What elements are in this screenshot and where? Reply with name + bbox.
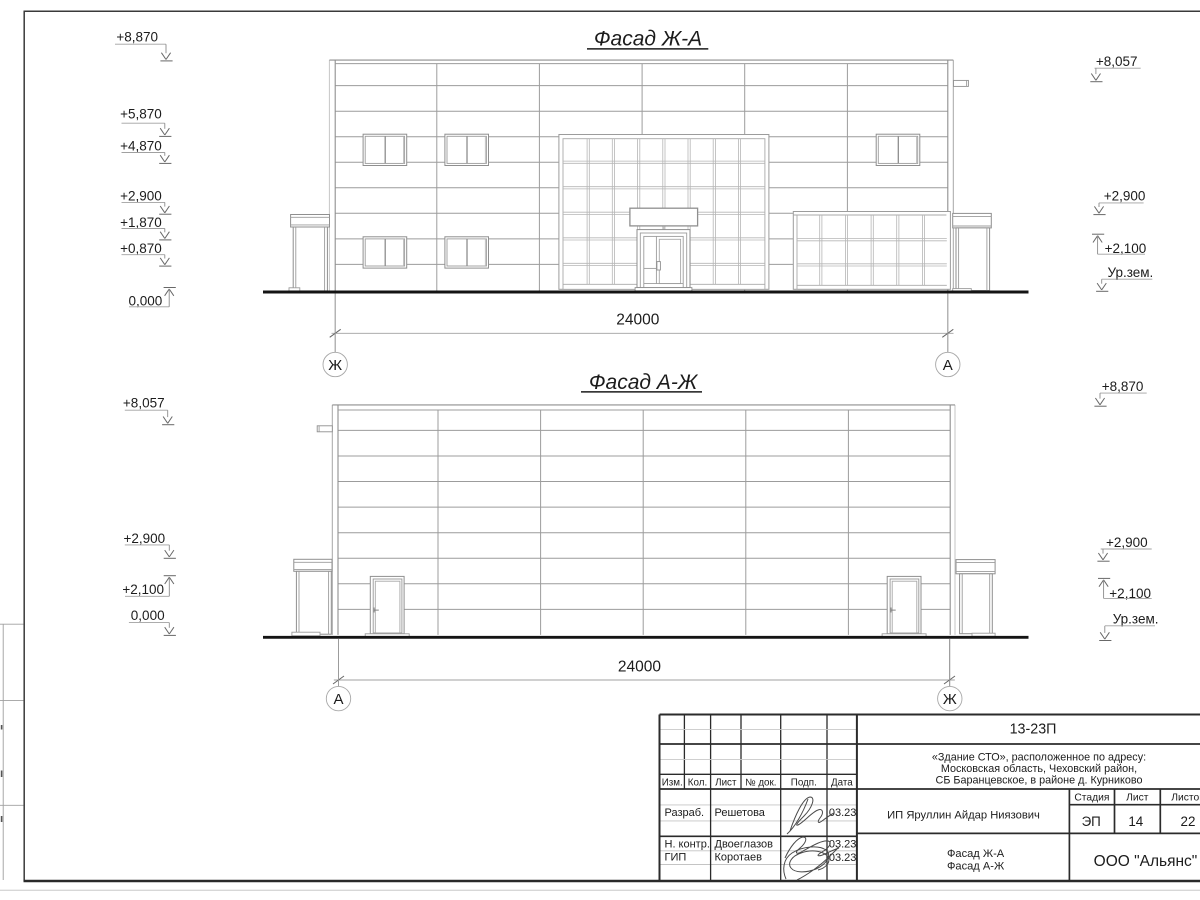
svg-text:Подп.: Подп. xyxy=(791,777,817,788)
svg-text:А: А xyxy=(943,357,953,374)
svg-text:03.23: 03.23 xyxy=(829,852,857,864)
svg-text:«Здание СТО», расположенное по: «Здание СТО», расположенное по адресу: xyxy=(932,752,1146,764)
svg-text:№ док.: № док. xyxy=(745,777,776,788)
svg-text:Коротаев: Коротаев xyxy=(715,852,763,864)
svg-text:+2,100: +2,100 xyxy=(1105,241,1147,256)
svg-text:+8,870: +8,870 xyxy=(116,30,158,45)
svg-text:Кол.: Кол. xyxy=(688,777,707,788)
svg-text:ООО "Альянс": ООО "Альянс" xyxy=(1094,853,1198,870)
svg-text:Стадия: Стадия xyxy=(1074,792,1109,803)
svg-text:+2,100: +2,100 xyxy=(122,582,164,597)
svg-text:+8,057: +8,057 xyxy=(123,396,165,411)
svg-text:Двоеглазов: Двоеглазов xyxy=(715,839,774,851)
svg-text:13-23П: 13-23П xyxy=(1010,721,1057,737)
svg-text:Дата: Дата xyxy=(831,777,853,788)
svg-text:Фасад Ж-А: Фасад Ж-А xyxy=(947,848,1005,860)
svg-text:+4,870: +4,870 xyxy=(120,138,162,153)
svg-text:+0,870: +0,870 xyxy=(120,241,162,256)
svg-text:0,000: 0,000 xyxy=(131,608,165,623)
svg-text:Ур.зем.: Ур.зем. xyxy=(1113,611,1159,626)
svg-text:Решетова: Решетова xyxy=(715,807,766,819)
svg-text:Листов: Листов xyxy=(1171,792,1200,803)
svg-text:А: А xyxy=(333,691,343,708)
svg-text:Лист: Лист xyxy=(1126,792,1149,803)
svg-text:СБ Баранцевское, в районе д. К: СБ Баранцевское, в районе д. Курниково xyxy=(936,774,1143,786)
svg-text:Фасад А-Ж: Фасад А-Ж xyxy=(947,860,1005,872)
svg-text:Лист: Лист xyxy=(715,777,737,788)
svg-text:+8,057: +8,057 xyxy=(1096,54,1138,69)
svg-text:+2,900: +2,900 xyxy=(1104,189,1146,204)
svg-text:24000: 24000 xyxy=(616,311,659,328)
svg-text:ГИП: ГИП xyxy=(665,852,687,864)
svg-text:Фасад А-Ж: Фасад А-Ж xyxy=(589,371,699,394)
svg-text:ЭП: ЭП xyxy=(1082,814,1101,829)
svg-text:+2,900: +2,900 xyxy=(1106,535,1148,550)
svg-text:Изм.: Изм. xyxy=(662,777,683,788)
svg-text:Фасад Ж-А: Фасад Ж-А xyxy=(594,28,702,51)
svg-text:+2,100: +2,100 xyxy=(1109,586,1151,601)
svg-text:Ур.зем.: Ур.зем. xyxy=(1108,265,1154,280)
svg-text:ИП Яруллин Айдар Ниязович: ИП Яруллин Айдар Ниязович xyxy=(887,809,1040,821)
svg-text:+5,870: +5,870 xyxy=(120,107,162,122)
svg-text:Московская область, Чеховский: Московская область, Чеховский район, xyxy=(941,763,1137,775)
svg-text:Ж: Ж xyxy=(328,357,342,374)
svg-text:24000: 24000 xyxy=(618,659,661,676)
svg-text:14: 14 xyxy=(1128,814,1143,829)
svg-text:03.23: 03.23 xyxy=(829,839,857,851)
svg-text:+2,900: +2,900 xyxy=(124,531,166,546)
svg-text:Ж: Ж xyxy=(943,691,957,708)
svg-text:Н. контр.: Н. контр. xyxy=(665,839,710,851)
svg-text:+1,870: +1,870 xyxy=(120,215,162,230)
svg-text:22: 22 xyxy=(1181,814,1196,829)
svg-text:+2,900: +2,900 xyxy=(120,188,162,203)
svg-text:Разраб.: Разраб. xyxy=(665,807,705,819)
svg-text:+8,870: +8,870 xyxy=(1102,379,1144,394)
